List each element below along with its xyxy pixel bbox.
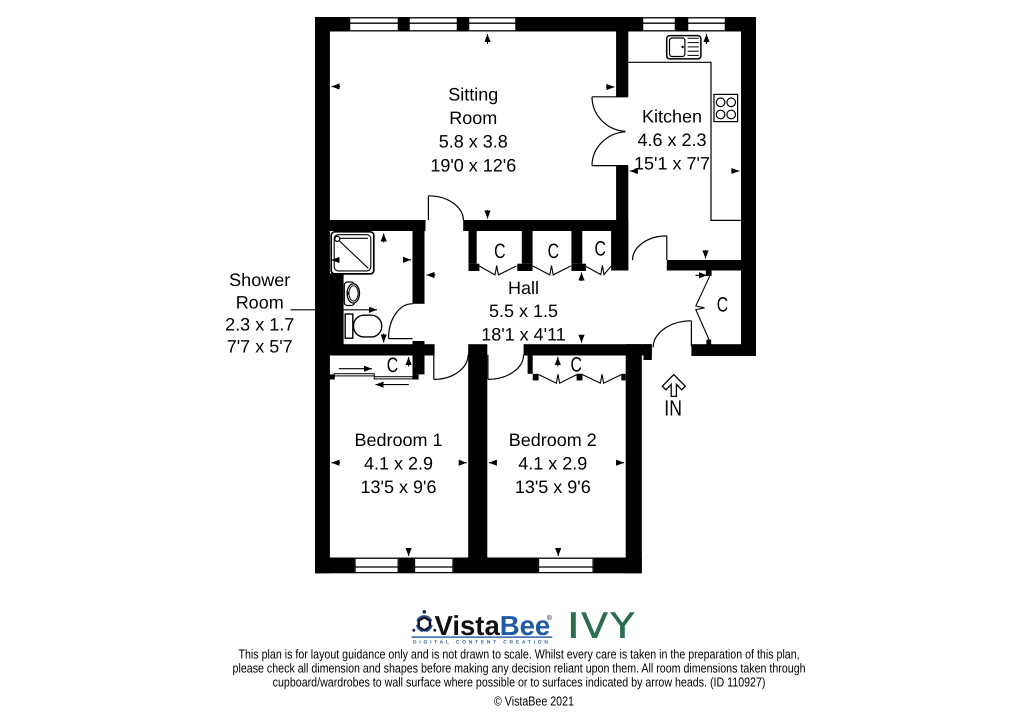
svg-text:please check all dimension and: please check all dimension and shapes be… bbox=[233, 661, 806, 676]
svg-text:15'1 x 7'7: 15'1 x 7'7 bbox=[634, 154, 710, 174]
svg-text:C: C bbox=[387, 354, 398, 377]
svg-text:This plan is for layout guidan: This plan is for layout guidance only an… bbox=[238, 647, 799, 662]
svg-text:5.5 x 1.5: 5.5 x 1.5 bbox=[489, 301, 558, 321]
svg-text:19'0 x 12'6: 19'0 x 12'6 bbox=[430, 155, 516, 175]
svg-text:Room: Room bbox=[449, 108, 497, 128]
svg-text:C: C bbox=[548, 240, 559, 263]
svg-text:cupboard/wardrobes to wall sur: cupboard/wardrobes to wall surface where… bbox=[273, 674, 766, 689]
svg-text:Shower: Shower bbox=[229, 270, 290, 290]
svg-text:5.8 x 3.8: 5.8 x 3.8 bbox=[439, 132, 508, 152]
svg-text:®: ® bbox=[547, 613, 553, 622]
svg-text:Kitchen: Kitchen bbox=[642, 107, 702, 127]
svg-text:IN: IN bbox=[664, 396, 682, 421]
svg-text:2.3 x 1.7: 2.3 x 1.7 bbox=[225, 315, 294, 335]
svg-text:© VistaBee 2021: © VistaBee 2021 bbox=[494, 694, 574, 709]
svg-text:Hall: Hall bbox=[508, 278, 539, 298]
svg-text:4.6 x 2.3: 4.6 x 2.3 bbox=[637, 130, 706, 150]
svg-text:Sitting: Sitting bbox=[448, 85, 498, 105]
svg-text:4.1 x 2.9: 4.1 x 2.9 bbox=[518, 454, 587, 474]
svg-text:C: C bbox=[570, 354, 581, 377]
svg-text:Bedroom 1: Bedroom 1 bbox=[354, 430, 442, 450]
svg-text:13'5 x 9'6: 13'5 x 9'6 bbox=[361, 477, 437, 497]
svg-text:Room: Room bbox=[236, 292, 284, 312]
svg-text:C: C bbox=[717, 293, 728, 316]
svg-text:C: C bbox=[594, 238, 605, 261]
svg-text:7'7 x 5'7: 7'7 x 5'7 bbox=[227, 336, 293, 356]
svg-text:C: C bbox=[494, 240, 505, 263]
svg-text:Bedroom 2: Bedroom 2 bbox=[509, 430, 597, 450]
svg-text:DIGITAL CONTENT CREATION: DIGITAL CONTENT CREATION bbox=[413, 640, 551, 646]
svg-text:4.1 x 2.9: 4.1 x 2.9 bbox=[364, 454, 433, 474]
svg-text:13'5 x 9'6: 13'5 x 9'6 bbox=[515, 477, 591, 497]
svg-text:18'1 x 4'11: 18'1 x 4'11 bbox=[481, 324, 566, 344]
